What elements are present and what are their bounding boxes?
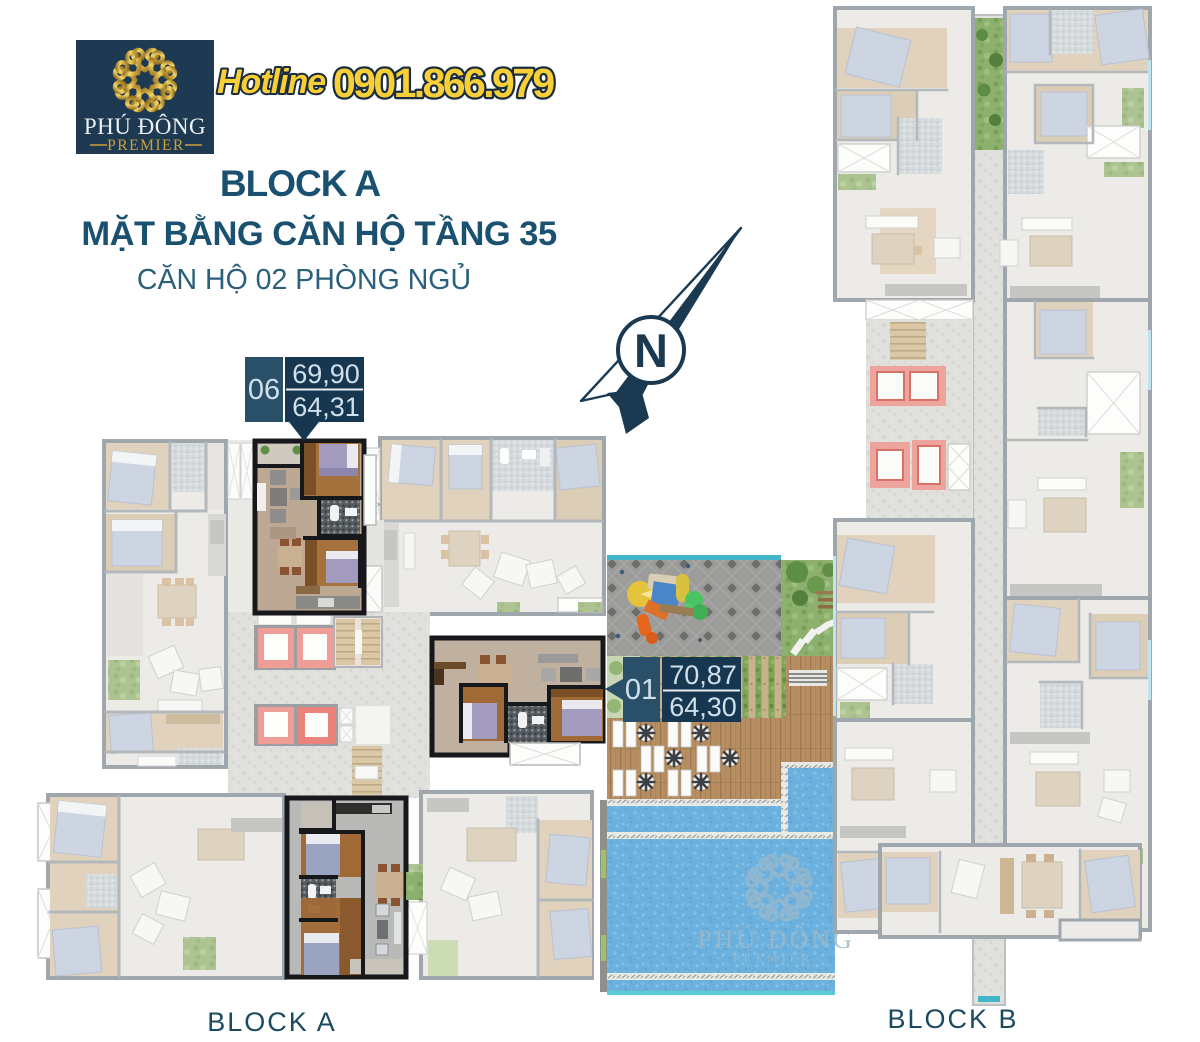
svg-text:64,30: 64,30 xyxy=(669,692,737,722)
svg-text:PHÚ ĐÔNG: PHÚ ĐÔNG xyxy=(697,925,855,954)
svg-text:PREMIER: PREMIER xyxy=(107,137,185,154)
svg-text:69,90: 69,90 xyxy=(292,359,360,389)
svg-text:Hotline: Hotline xyxy=(217,63,325,101)
svg-text:64,31: 64,31 xyxy=(292,392,360,422)
svg-text:PREMIER: PREMIER xyxy=(733,951,813,965)
svg-text:BLOCK A: BLOCK A xyxy=(220,163,380,204)
svg-text:CĂN HỘ 02 PHÒNG NGỦ: CĂN HỘ 02 PHÒNG NGỦ xyxy=(137,263,471,296)
svg-text:0901.866.979: 0901.866.979 xyxy=(333,60,554,106)
svg-text:BLOCK A: BLOCK A xyxy=(207,1007,337,1037)
svg-text:N: N xyxy=(634,324,668,377)
svg-text:06: 06 xyxy=(248,374,280,406)
svg-text:BLOCK B: BLOCK B xyxy=(887,1004,1018,1034)
svg-text:MẶT BẰNG CĂN HỘ TẦNG 35: MẶT BẰNG CĂN HỘ TẦNG 35 xyxy=(81,213,557,253)
svg-text:70,87: 70,87 xyxy=(669,660,737,690)
svg-text:01: 01 xyxy=(625,674,657,706)
svg-text:PHÚ ĐÔNG: PHÚ ĐÔNG xyxy=(84,113,206,139)
